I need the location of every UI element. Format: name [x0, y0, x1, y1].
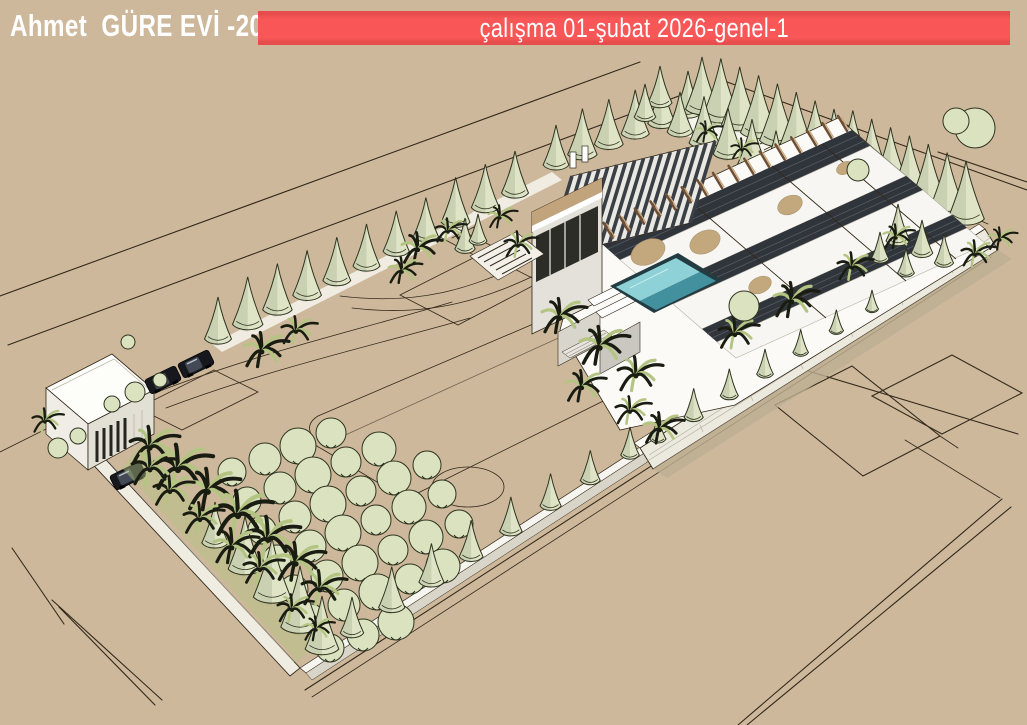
project-title: Ahmet GÜRE EVİ -2026 [10, 7, 291, 45]
rendering-page: Ahmet GÜRE EVİ -2026 çalışma 01-şubat 20… [0, 0, 1027, 725]
site-rendering [0, 0, 1027, 725]
chimney [570, 152, 576, 168]
revision-banner-label: çalışma 01-şubat 2026-genel-1 [479, 13, 788, 44]
chimney [582, 146, 588, 162]
revision-banner: çalışma 01-şubat 2026-genel-1 [258, 11, 1010, 45]
